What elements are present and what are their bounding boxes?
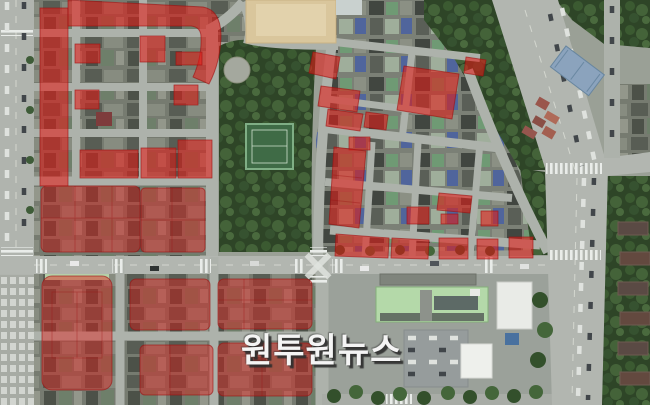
zone	[174, 85, 198, 105]
zone	[364, 112, 388, 130]
zone	[40, 8, 68, 186]
zone	[130, 279, 210, 330]
zone	[407, 207, 429, 224]
zone	[397, 66, 459, 119]
watermark-text: 원투원뉴스	[241, 334, 402, 368]
zone	[178, 140, 212, 178]
zone	[437, 193, 472, 213]
zone	[80, 150, 138, 178]
zone	[349, 137, 370, 150]
zone	[140, 36, 165, 62]
zone	[75, 90, 99, 109]
park-plaza	[224, 57, 250, 83]
zone	[481, 211, 498, 226]
zone	[176, 52, 202, 65]
zone	[441, 214, 458, 224]
zone	[140, 345, 213, 395]
news-photo: 원투원뉴스	[0, 0, 650, 405]
white-building	[497, 282, 532, 329]
blue-pool	[505, 333, 519, 345]
zone	[464, 57, 486, 76]
sports-court	[246, 124, 293, 169]
zone	[75, 44, 100, 63]
green-roof-complex	[376, 287, 488, 322]
zone	[329, 147, 366, 228]
zone	[218, 279, 312, 329]
roadside-parking	[0, 275, 34, 405]
zone	[41, 186, 140, 252]
zone	[477, 239, 498, 259]
white-building-2	[461, 344, 492, 378]
zone	[335, 234, 389, 258]
parking-lot	[404, 330, 468, 387]
zone	[141, 148, 176, 178]
zone	[439, 238, 468, 259]
zone	[509, 237, 533, 258]
zone	[391, 238, 429, 259]
